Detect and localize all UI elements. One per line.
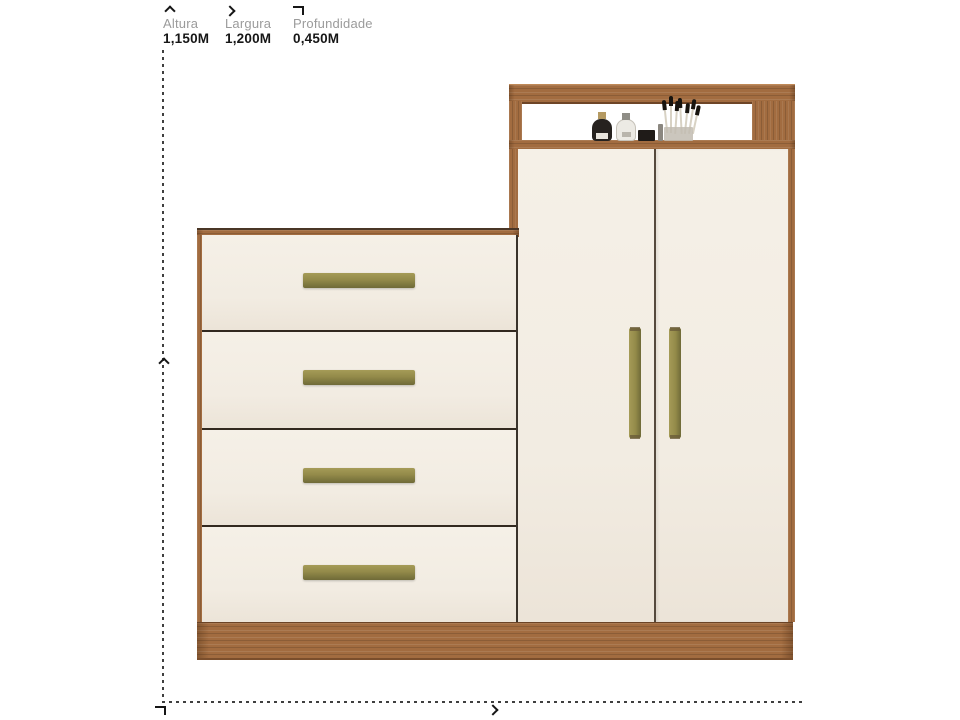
altura-label: Altura — [163, 17, 209, 31]
profundidade-label: Profundidade — [293, 17, 373, 31]
drawer-3-handle — [303, 468, 415, 483]
drawer-4 — [202, 527, 516, 622]
width-marker-icon — [488, 706, 497, 714]
altura-value: 1,150M — [163, 31, 209, 47]
drawer-3 — [202, 430, 516, 525]
largura-value: 1,200M — [225, 31, 271, 47]
drawer-2 — [202, 332, 516, 427]
depth-arrow-icon — [293, 3, 373, 17]
depth-marker-icon — [155, 706, 166, 715]
drawer-4-handle — [303, 565, 415, 580]
wardrobe-right-edge — [788, 149, 795, 622]
width-arrow-icon — [225, 3, 271, 17]
dimension-largura: Largura 1,200M — [225, 3, 271, 47]
largura-label: Largura — [225, 17, 271, 31]
wardrobe-door-left — [518, 149, 654, 623]
niche-shelf — [509, 140, 795, 149]
bottle-label — [622, 132, 631, 137]
black-perfume-bottle — [592, 119, 612, 141]
dimension-profundidade: Profundidade 0,450M — [293, 3, 373, 47]
niche-left-panel — [509, 101, 522, 140]
silver-bottle-cap — [622, 113, 630, 120]
door-left-handle — [629, 328, 641, 438]
drawer-1 — [202, 235, 516, 330]
bottle-label — [596, 133, 608, 139]
white-perfume-bottle — [616, 119, 636, 141]
niche-right-panel — [752, 101, 795, 140]
height-guide-line — [162, 50, 164, 701]
drawer-2-handle — [303, 370, 415, 385]
profundidade-value: 0,450M — [293, 31, 373, 47]
height-marker-icon — [157, 359, 168, 367]
width-guide-line — [162, 701, 803, 703]
brush-holder-cup — [664, 127, 693, 141]
drawer-stack — [202, 235, 518, 622]
door-right-handle — [669, 328, 681, 438]
height-arrow-icon — [163, 3, 209, 17]
black-cosmetic-case — [638, 130, 655, 141]
drawer-1-handle — [303, 273, 415, 288]
dimension-altura: Altura 1,150M — [163, 3, 209, 47]
base-plinth — [197, 622, 793, 660]
wardrobe-door-right — [656, 149, 788, 623]
gold-bottle-cap — [598, 112, 606, 119]
